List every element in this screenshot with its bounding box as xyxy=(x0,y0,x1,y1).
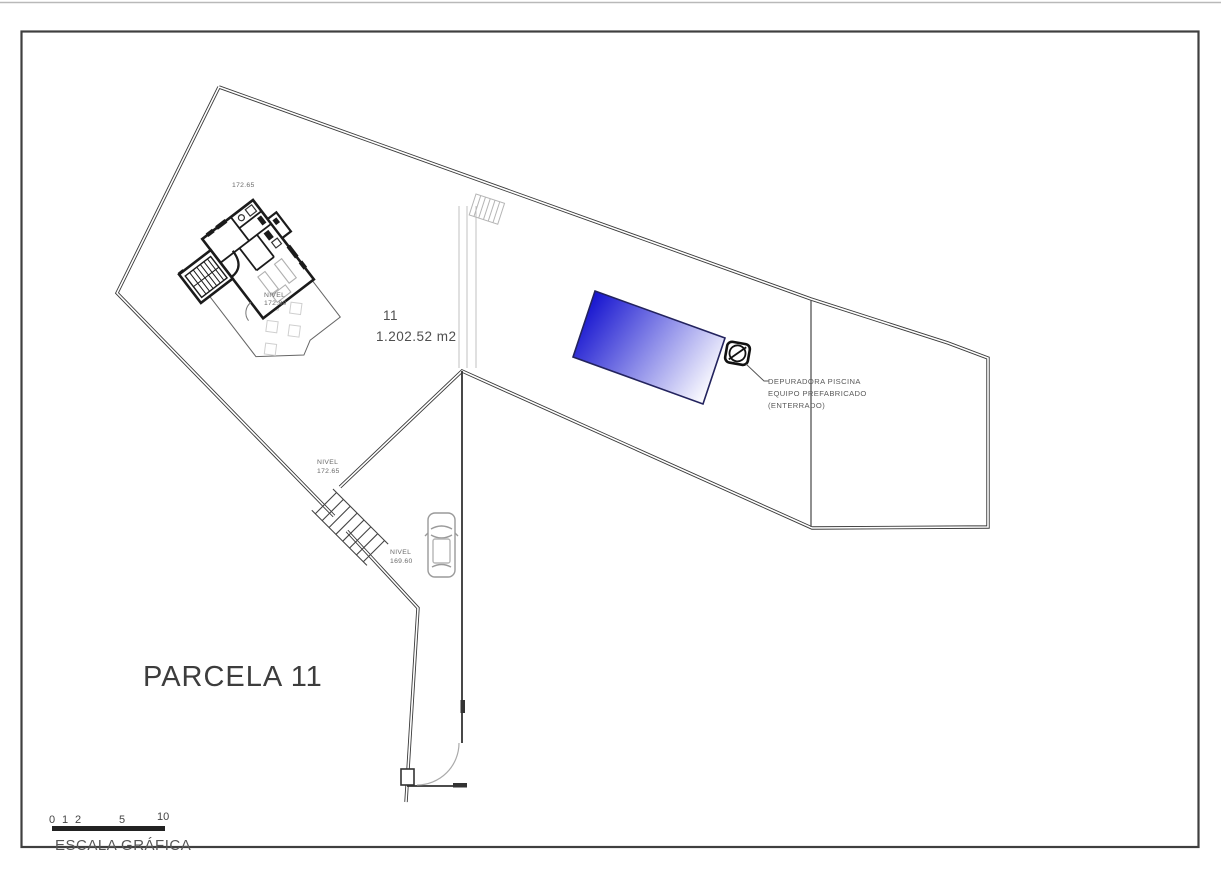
pool-equipment-note-line1: DEPURADORA PISCINA xyxy=(768,377,861,386)
pool-equipment-note-line3: (ENTERRADO) xyxy=(768,401,825,410)
scale-bar: 0 1 2 5 10 ESCALA GRÁFICA xyxy=(49,811,191,854)
driveway-level-label: NIVEL xyxy=(390,549,411,556)
gate-foot xyxy=(453,783,467,788)
parcel-area: 1.202.52 m2 xyxy=(376,329,457,344)
scale-bar-rule xyxy=(52,826,165,831)
site-plan-page: 172.65 NIVEL 172.80 11 1.202.52 m2 NIVEL… xyxy=(0,0,1221,877)
scale-tick-0: 0 xyxy=(49,814,55,826)
house-floorplan xyxy=(169,192,355,386)
car-icon xyxy=(425,513,458,577)
scale-tick-5: 5 xyxy=(119,814,125,826)
door-jamb xyxy=(461,700,466,713)
plot-boundary xyxy=(117,87,988,802)
swimming-pool xyxy=(573,291,725,404)
parcel-title: PARCELA 11 xyxy=(143,661,323,693)
site-plan-canvas: 172.65 NIVEL 172.80 11 1.202.52 m2 NIVEL… xyxy=(0,0,1221,877)
outdoor-stairs xyxy=(312,489,388,565)
terrain-level-label: 172.65 xyxy=(232,182,255,189)
access-path xyxy=(459,206,476,368)
house-level-value: 172.80 xyxy=(264,300,287,307)
house-level-label: NIVEL xyxy=(264,292,285,299)
garden-level-label: NIVEL xyxy=(317,459,338,466)
scale-tick-1: 1 xyxy=(62,814,68,826)
scale-tick-2: 2 xyxy=(75,814,81,826)
driveway-level-value: 169.60 xyxy=(390,558,413,565)
entrance-steps xyxy=(469,194,504,224)
pool-equipment-icon xyxy=(724,341,769,381)
gate-swing-arc xyxy=(417,743,459,785)
leader-line xyxy=(746,364,769,381)
garden-level-value: 172.65 xyxy=(317,468,340,475)
scale-bar-label: ESCALA GRÁFICA xyxy=(55,837,191,854)
scale-tick-10: 10 xyxy=(157,811,169,823)
pool-equipment-note-line2: EQUIPO PREFABRICADO xyxy=(768,389,867,398)
parcel-number: 11 xyxy=(383,308,398,323)
gate-post xyxy=(401,769,414,785)
